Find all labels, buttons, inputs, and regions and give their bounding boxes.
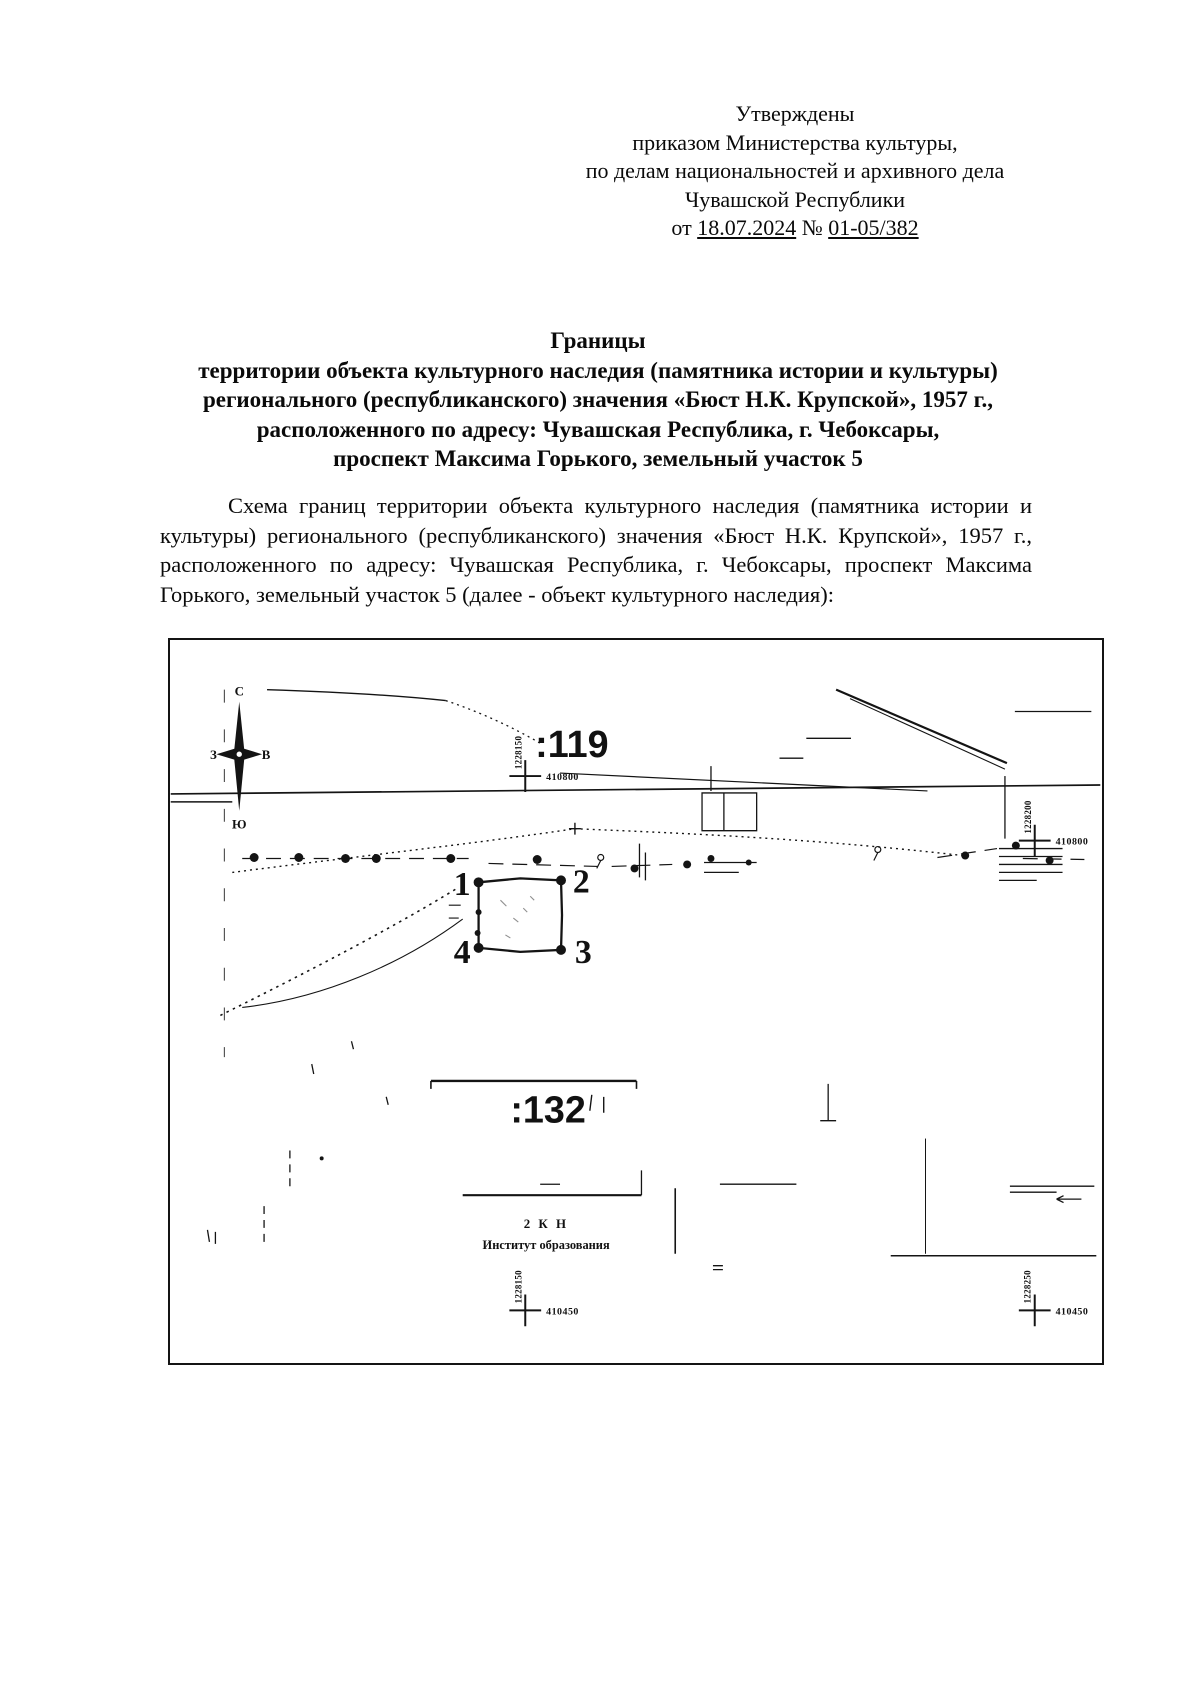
compass-rose: С Ю З В — [210, 684, 271, 832]
map-topography-lines — [171, 690, 1101, 1057]
map-drawing: 1 2 3 4 :119 :132 — [170, 640, 1101, 1362]
grid-northing-label: 410450 — [546, 1306, 579, 1317]
approval-date: 18.07.2024 — [697, 215, 796, 240]
parcel-132-label: :132 — [510, 1089, 586, 1131]
title-line-4: расположенного по адресу: Чувашская Респ… — [0, 415, 1196, 445]
boundary-point-3: 3 — [575, 934, 592, 971]
grid-easting-label: 1228200 — [1023, 800, 1033, 834]
heritage-boundary-polygon: 1 2 3 4 — [449, 863, 592, 971]
boundary-point-4: 4 — [454, 934, 471, 971]
institute-name-label: Институт образования — [483, 1238, 610, 1252]
compass-hub — [236, 751, 242, 757]
document-title: Границы территории объекта культурного н… — [0, 326, 1196, 474]
title-line-1: Границы — [0, 326, 1196, 356]
boundary-vertex-dots — [474, 875, 566, 954]
approval-block: Утверждены приказом Министерства культур… — [545, 100, 1045, 243]
grid-easting-label: 1228250 — [1023, 1270, 1033, 1304]
title-line-2: территории объекта культурного наследия … — [0, 356, 1196, 386]
grid-cross-bottom-left: 1228150 410450 — [509, 1270, 578, 1326]
approval-number: 01-05/382 — [828, 215, 918, 240]
title-line-3: регионального (республиканского) значени… — [0, 385, 1196, 415]
grid-northing-label: 410800 — [1056, 837, 1089, 848]
title-line-5: проспект Максима Горького, земельный уча… — [0, 444, 1196, 474]
approval-line-4: Чувашской Республики — [545, 186, 1045, 215]
approval-line-3: по делам национальностей и архивного дел… — [545, 157, 1045, 186]
date-prefix: от — [671, 215, 691, 240]
compass-north-label: С — [235, 684, 244, 699]
approval-date-line: от 18.07.2024 № 01-05/382 — [545, 214, 1045, 243]
map-misc-marks — [207, 1041, 836, 1269]
scan-noise — [500, 896, 534, 938]
number-sign: № — [802, 215, 823, 240]
parcel-119-label: :119 — [535, 723, 608, 765]
institute-building: 2 К Н Институт образования — [463, 1139, 1097, 1256]
boundary-point-1: 1 — [454, 866, 471, 903]
tree-row — [242, 842, 1084, 873]
map-structures-right — [639, 776, 1062, 880]
tree-dots — [250, 842, 1054, 873]
grid-northing-label: 410450 — [1056, 1306, 1089, 1317]
scheme-description-paragraph: Схема границ территории объекта культурн… — [160, 491, 1032, 609]
approval-line-2: приказом Министерства культуры, — [545, 129, 1045, 158]
document-page: Утверждены приказом Министерства культур… — [0, 0, 1200, 1697]
map-dotted-paths — [220, 823, 962, 1016]
building-floors-label: 2 К Н — [524, 1216, 569, 1231]
compass-south-label: Ю — [232, 817, 247, 832]
boundary-point-2: 2 — [573, 863, 590, 900]
grid-northing-label: 410800 — [546, 772, 579, 783]
compass-east-label: В — [262, 747, 271, 762]
grid-easting-label: 1228150 — [513, 1270, 523, 1304]
boundary-scheme-map: 1 2 3 4 :119 :132 — [168, 638, 1104, 1365]
compass-west-label: З — [210, 747, 217, 762]
approval-line-1: Утверждены — [545, 100, 1045, 129]
grid-easting-label: 1228150 — [513, 736, 523, 770]
grid-cross-bottom-right: 1228250 410450 — [1019, 1270, 1088, 1326]
